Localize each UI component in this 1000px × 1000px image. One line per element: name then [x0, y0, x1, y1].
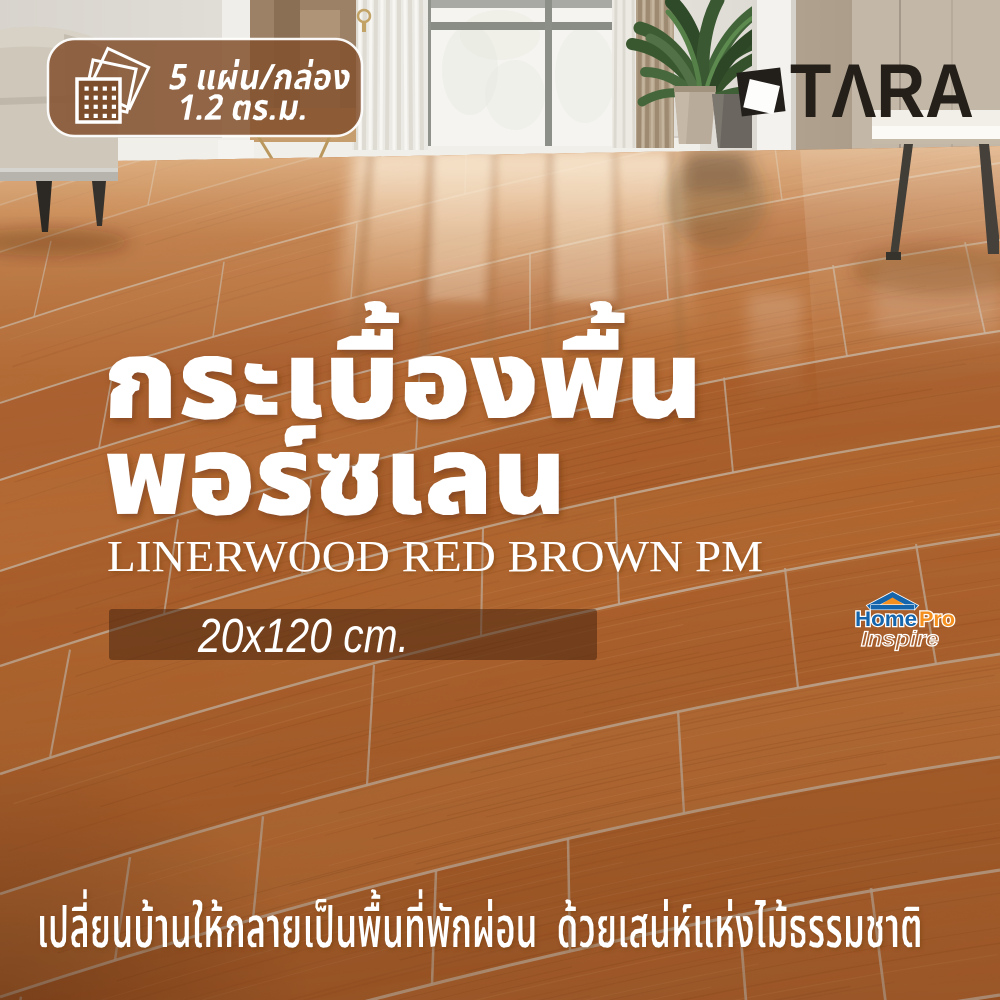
svg-text:TΛRA: TΛRA [790, 49, 974, 134]
svg-text:20x120 cm.: 20x120 cm. [197, 610, 409, 663]
svg-text:Inspire: Inspire [861, 628, 939, 651]
svg-text:LINERWOOD RED BROWN PM: LINERWOOD RED BROWN PM [107, 532, 763, 581]
